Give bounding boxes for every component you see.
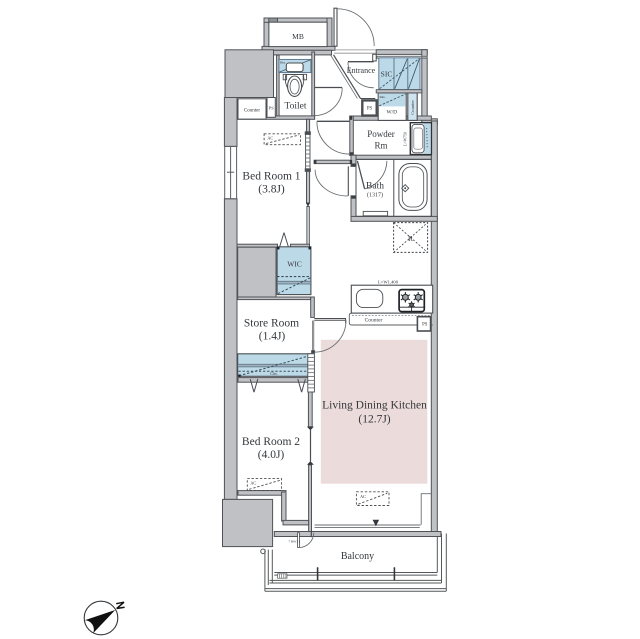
svg-text:Counter: Counter <box>244 109 260 114</box>
svg-text:Counter: Counter <box>410 100 415 115</box>
svg-text:WIC: WIC <box>287 260 302 269</box>
svg-text:Store Room: Store Room <box>244 318 299 330</box>
svg-text:W/D: W/D <box>386 110 397 116</box>
svg-text:PS: PS <box>422 323 428 328</box>
svg-text:Cln.: Cln. <box>270 371 277 376</box>
svg-text:Bed Room 1: Bed Room 1 <box>242 171 300 183</box>
svg-text:Bath: Bath <box>366 182 384 192</box>
svg-text:Powder: Powder <box>367 129 395 139</box>
svg-text:SIC: SIC <box>381 69 393 78</box>
svg-text:L=W1,400: L=W1,400 <box>378 279 399 285</box>
svg-text:Rm: Rm <box>374 141 387 151</box>
svg-text:Balcony: Balcony <box>341 551 374 562</box>
svg-text:AC: AC <box>267 136 273 141</box>
svg-text:(1317): (1317) <box>367 191 383 198</box>
svg-text:Entrance: Entrance <box>347 66 376 75</box>
svg-text:AC: AC <box>250 481 256 486</box>
svg-text:PS: PS <box>269 106 274 111</box>
svg-text:7 B917 1: 7 B917 1 <box>288 539 300 543</box>
svg-text:Bed Room 2: Bed Room 2 <box>242 436 300 448</box>
svg-text:(1.4J): (1.4J) <box>259 330 286 342</box>
svg-text:R: R <box>408 234 413 243</box>
svg-text:(4.0J): (4.0J) <box>258 449 285 461</box>
svg-text:AC: AC <box>360 494 366 499</box>
svg-text:Living Dining Kitchen: Living Dining Kitchen <box>322 399 427 411</box>
svg-text:Toilet: Toilet <box>284 101 306 111</box>
svg-text:L=W750: L=W750 <box>404 132 408 146</box>
svg-text:Rks.: Rks. <box>280 60 286 64</box>
svg-text:Rks.: Rks. <box>379 95 385 99</box>
svg-text:PS: PS <box>367 107 373 112</box>
svg-text:(3.8J): (3.8J) <box>258 183 285 195</box>
svg-text:(12.7J): (12.7J) <box>358 413 390 425</box>
svg-text:Counter: Counter <box>365 317 383 323</box>
svg-text:MB: MB <box>292 32 304 41</box>
